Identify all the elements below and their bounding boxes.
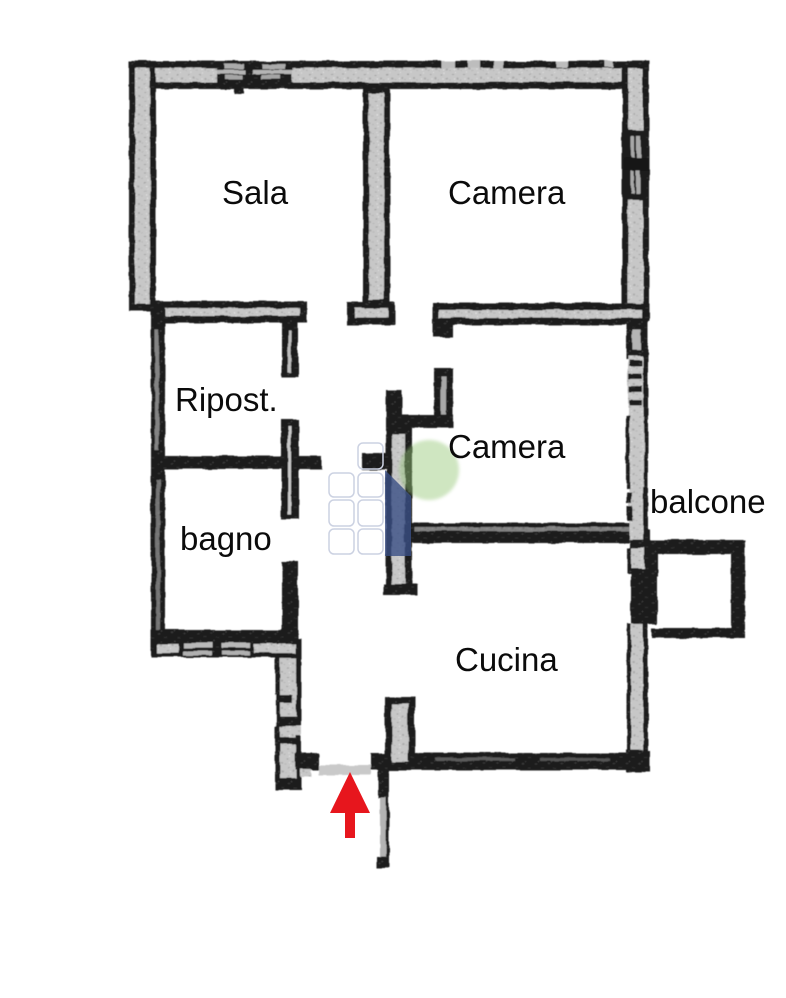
svg-text:Camera: Camera (448, 428, 566, 465)
svg-text:balcone: balcone (650, 483, 766, 520)
svg-text:Ripost.: Ripost. (175, 381, 278, 418)
svg-text:bagno: bagno (180, 520, 272, 557)
svg-text:Sala: Sala (222, 174, 289, 211)
svg-text:Cucina: Cucina (455, 641, 558, 678)
svg-text:Camera: Camera (448, 174, 566, 211)
